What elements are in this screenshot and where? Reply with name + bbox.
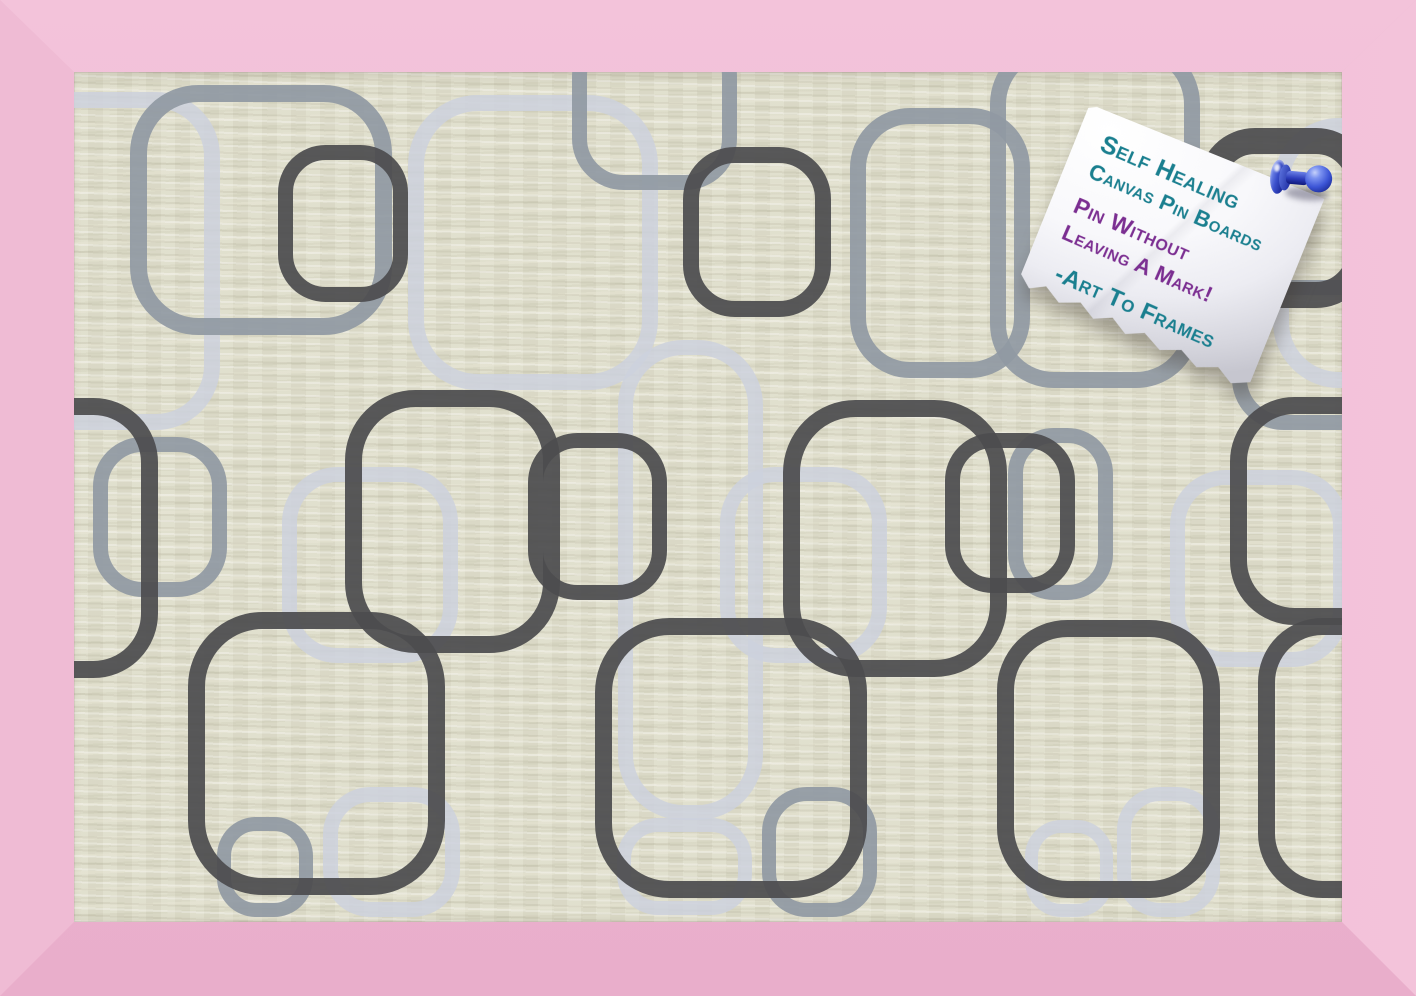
pattern-square-medium: [224, 824, 306, 910]
pattern-square-medium: [101, 445, 220, 590]
product-photo: Self Healing Canvas Pin Boards Pin Witho…: [0, 0, 1416, 996]
pushpin-icon: [1268, 154, 1338, 206]
pattern-square-dark: [1239, 406, 1343, 617]
pattern-square-light: [416, 103, 650, 382]
